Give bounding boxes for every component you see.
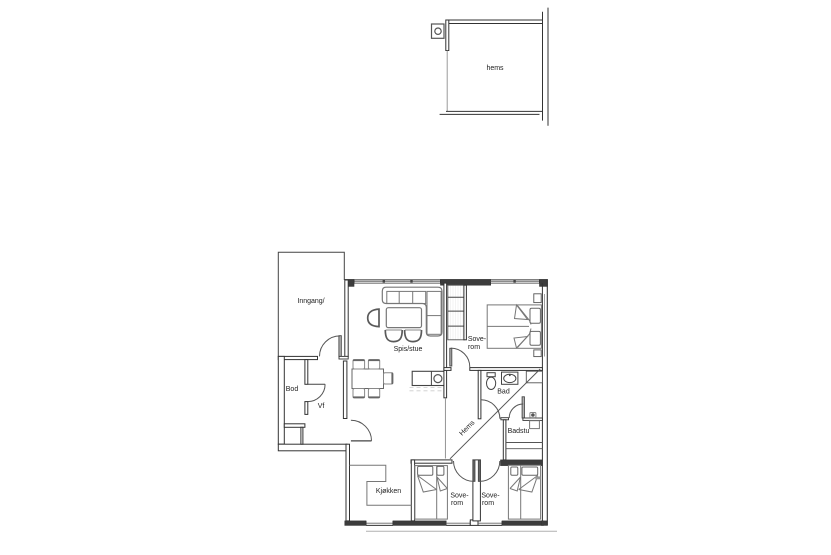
- svg-text:Spis/stue: Spis/stue: [394, 346, 423, 353]
- svg-text:Sove-: Sove-: [468, 336, 487, 343]
- svg-text:hems: hems: [486, 65, 504, 72]
- svg-text:rom: rom: [482, 500, 494, 507]
- svg-text:Sove-: Sove-: [481, 493, 500, 500]
- svg-text:Badstu: Badstu: [508, 428, 530, 435]
- svg-text:Bod: Bod: [286, 386, 299, 393]
- svg-text:rom: rom: [468, 344, 480, 351]
- svg-text:Sove-: Sove-: [450, 493, 469, 500]
- svg-text:Bad: Bad: [497, 389, 510, 396]
- svg-text:rom: rom: [451, 500, 463, 507]
- svg-text:Kjøkken: Kjøkken: [376, 488, 401, 495]
- svg-text:Inngang/: Inngang/: [297, 298, 324, 305]
- svg-text:Vf: Vf: [318, 403, 325, 410]
